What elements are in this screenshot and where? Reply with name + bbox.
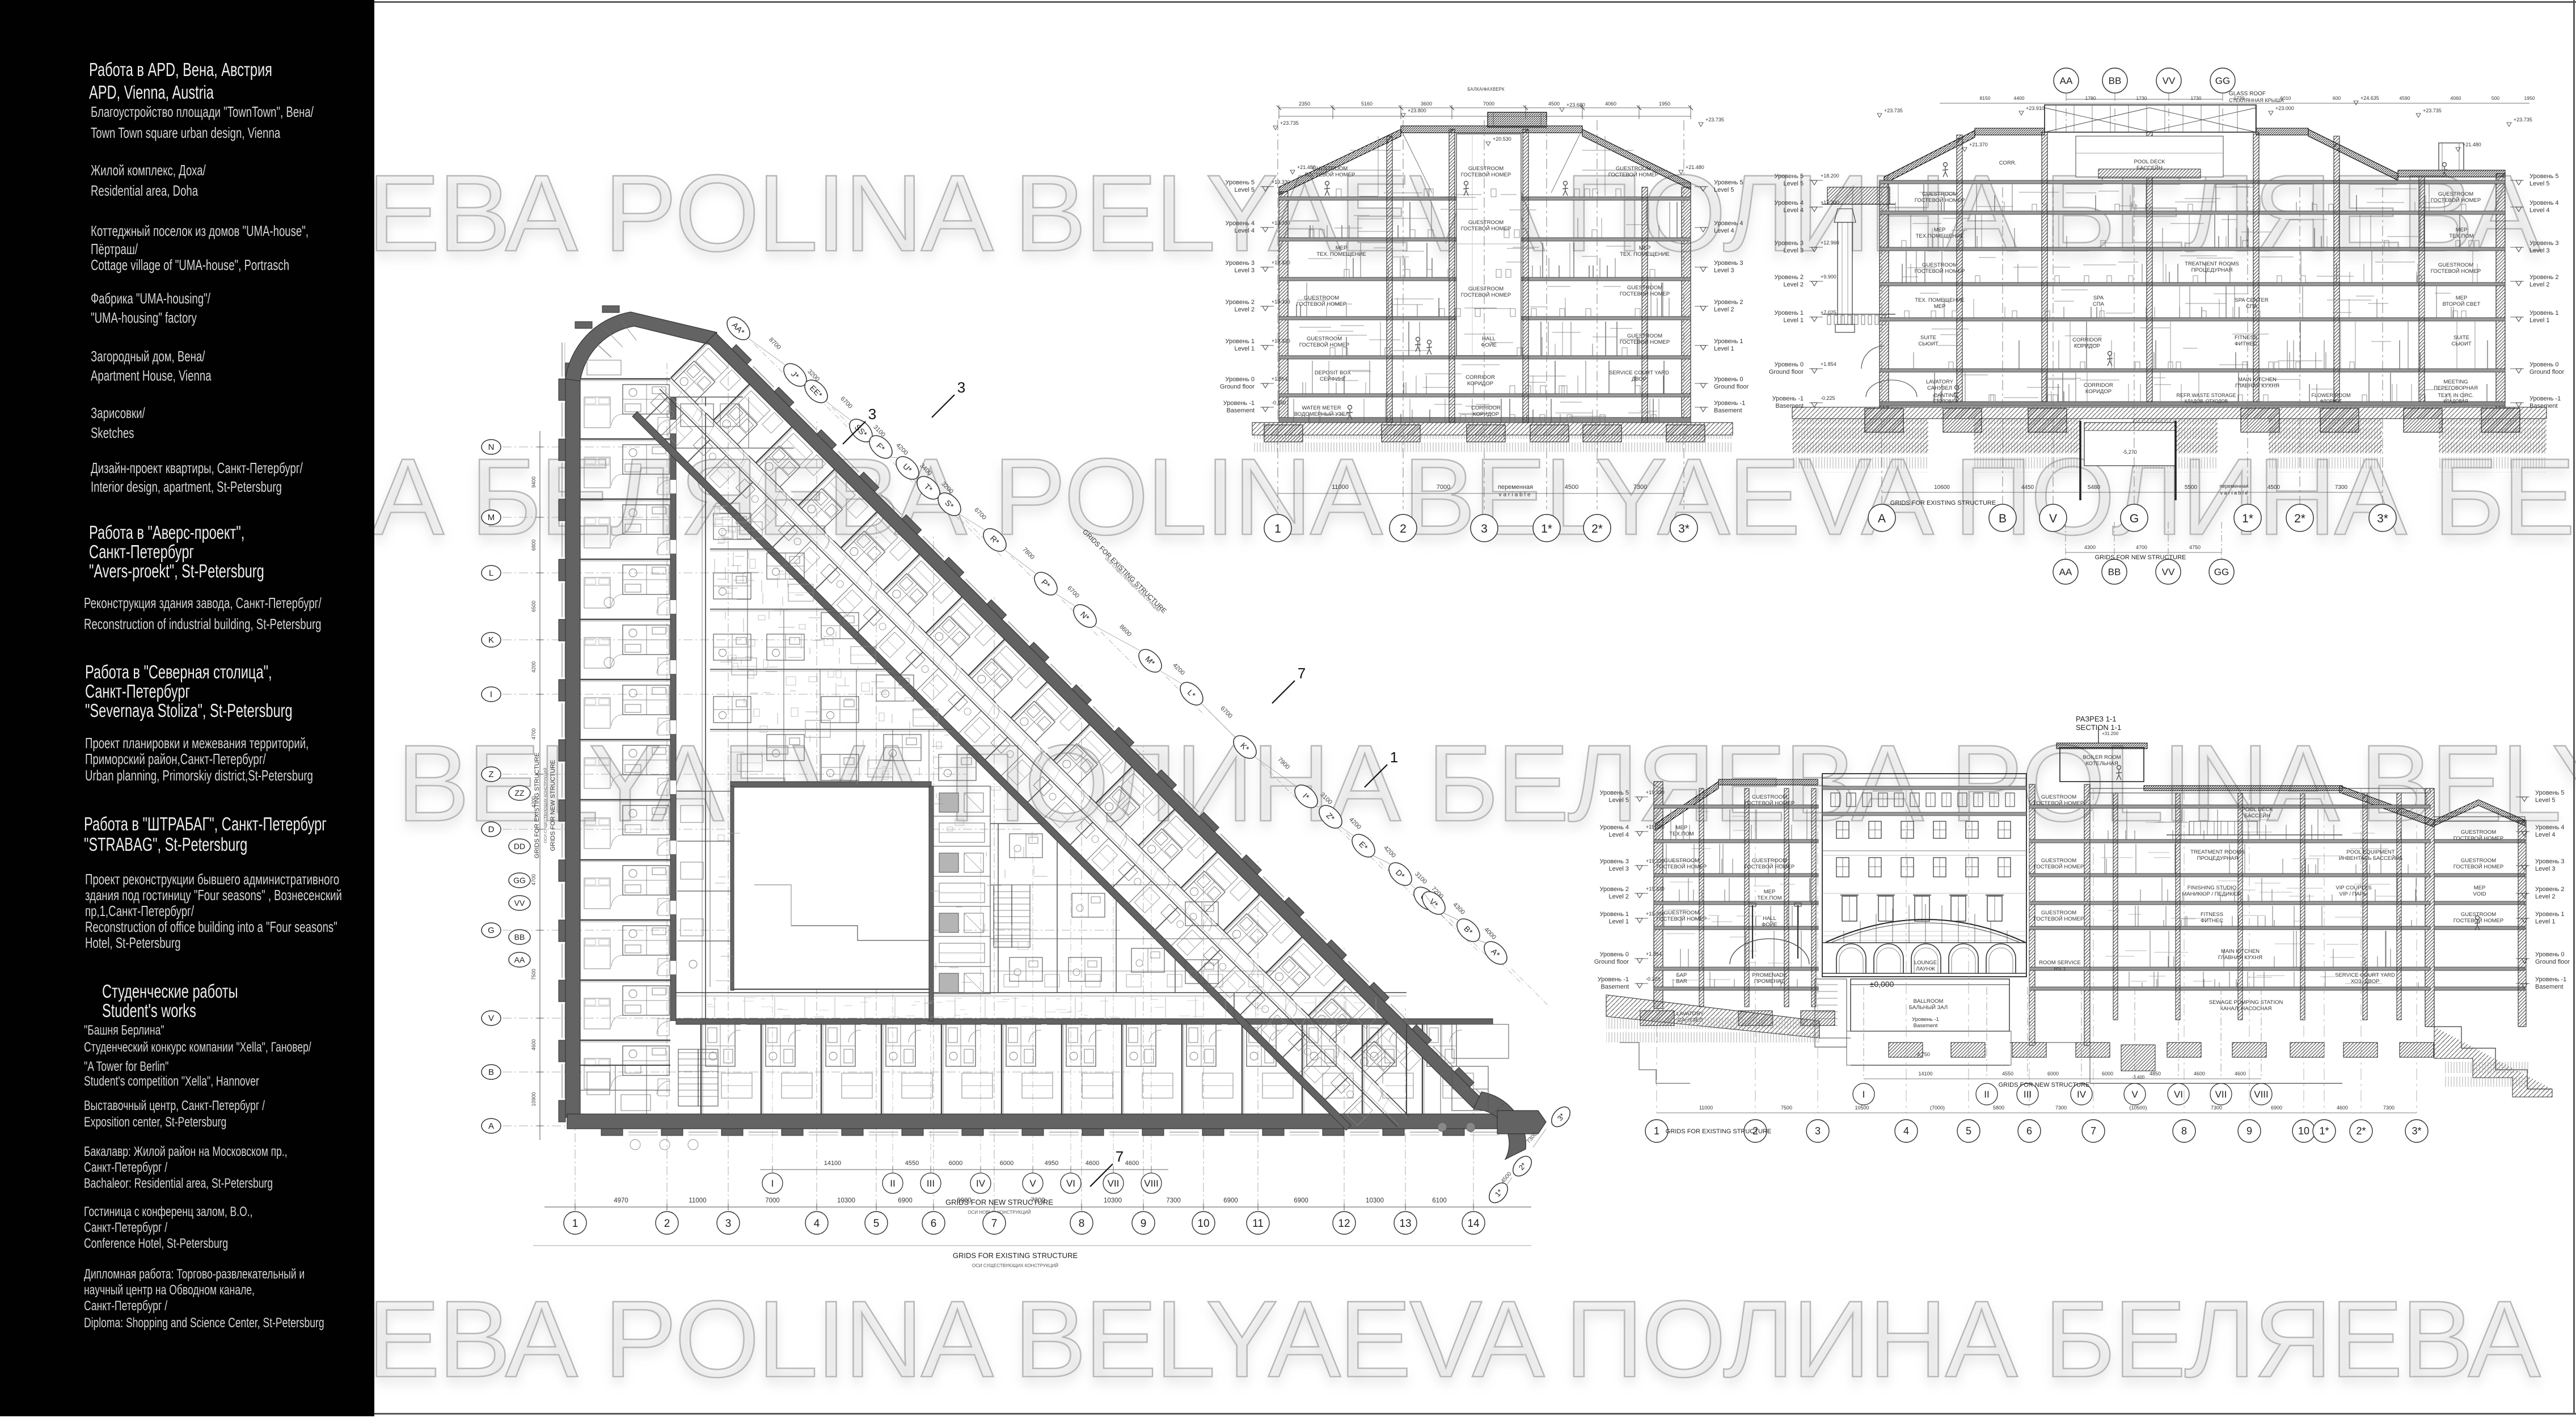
svg-text:+19.330: +19.330 [1646, 886, 1665, 892]
svg-text:4550: 4550 [905, 1160, 919, 1167]
svg-text:Уровень 0: Уровень 0 [1774, 361, 1804, 368]
svg-text:A: A [488, 1121, 494, 1131]
svg-text:-0.550: -0.550 [1272, 400, 1286, 406]
svg-text:K: K [488, 635, 494, 645]
svg-text:+19.330: +19.330 [1272, 220, 1290, 226]
svg-text:7500: 7500 [1781, 1105, 1792, 1111]
svg-text:КОРИДОР: КОРИДОР [2085, 389, 2112, 395]
svg-text:4500: 4500 [1548, 101, 1560, 107]
svg-text:4600: 4600 [2337, 1105, 2348, 1111]
svg-text:Уровень 4: Уровень 4 [2535, 824, 2565, 831]
svg-text:Level 1: Level 1 [2529, 317, 2549, 324]
svg-text:Level 4: Level 4 [2535, 832, 2555, 838]
svg-text:Level 3: Level 3 [1714, 267, 1734, 274]
svg-text:GUESTROOM: GUESTROOM [1616, 166, 1651, 172]
svg-text:GUESTROOM: GUESTROOM [2461, 829, 2496, 835]
svg-text:Уровень 1: Уровень 1 [1599, 911, 1629, 918]
svg-text:3: 3 [868, 406, 876, 423]
svg-text:КАНАЛ. НАСОСНАЯ: КАНАЛ. НАСОСНАЯ [2220, 1006, 2272, 1012]
svg-text:6100: 6100 [1432, 1197, 1447, 1204]
svg-text:10300: 10300 [1104, 1197, 1122, 1204]
svg-text:POOL EQUIPMENT: POOL EQUIPMENT [2346, 849, 2395, 855]
svg-text:CORRIDOR: CORRIDOR [2084, 382, 2113, 389]
svg-text:ТЕХ.ПОМ: ТЕХ.ПОМ [1757, 895, 1781, 901]
svg-text:DEPOSIT BOX: DEPOSIT BOX [1315, 370, 1352, 376]
svg-text:+23.735: +23.735 [2514, 117, 2532, 123]
svg-text:Level 5: Level 5 [1784, 180, 1804, 187]
svg-text:D: D [488, 825, 495, 834]
svg-text:1: 1 [1274, 522, 1281, 535]
svg-text:Уровень -1: Уровень -1 [1912, 1016, 1939, 1023]
svg-text:7: 7 [1116, 1148, 1124, 1165]
svg-text:ГОСТЕВОЙ НОМЕР: ГОСТЕВОЙ НОМЕР [2453, 863, 2503, 870]
svg-text:ДВОР: ДВОР [1632, 376, 1646, 382]
svg-text:переменная: переменная [2220, 483, 2249, 489]
svg-text:+19.330: +19.330 [1272, 260, 1290, 265]
svg-text:10900: 10900 [531, 1092, 537, 1106]
svg-text:+21.370: +21.370 [1969, 142, 1988, 147]
svg-text:ГЛАВНАЯ КУХНЯ: ГЛАВНАЯ КУХНЯ [2218, 955, 2262, 961]
svg-text:IV: IV [976, 1178, 986, 1189]
svg-text:7800: 7800 [1021, 546, 1036, 561]
svg-text:Level 1: Level 1 [2535, 918, 2555, 925]
svg-text:10: 10 [1197, 1218, 1209, 1230]
svg-text:I: I [490, 690, 492, 699]
svg-text:3: 3 [725, 1218, 732, 1230]
svg-text:Z: Z [488, 770, 493, 779]
svg-text:3400: 3400 [918, 462, 933, 477]
svg-text:ГОСТЕВОЙ НОМЕР: ГОСТЕВОЙ НОМЕР [2431, 268, 2481, 275]
svg-text:ГОСТЕВОЙ НОМЕР: ГОСТЕВОЙ НОМЕР [1461, 171, 1511, 178]
svg-text:Basement: Basement [1914, 1023, 1938, 1029]
svg-text:+23.680: +23.680 [1566, 102, 1585, 108]
svg-text:ИНВЕНТАРЬ БАССЕЙНА: ИНВЕНТАРЬ БАССЕЙНА [2339, 855, 2403, 862]
svg-text:7300: 7300 [2383, 1105, 2395, 1111]
svg-text:II: II [890, 1178, 895, 1189]
svg-text:+23.910: +23.910 [2026, 105, 2045, 111]
svg-text:GUESTROOM: GUESTROOM [1304, 295, 1339, 301]
svg-text:+24.635: +24.635 [2360, 95, 2379, 101]
svg-text:Level 2: Level 2 [1784, 281, 1804, 288]
svg-text:4300: 4300 [2084, 545, 2096, 550]
svg-text:+23.735: +23.735 [1280, 120, 1299, 126]
svg-text:4590: 4590 [2400, 95, 2410, 101]
svg-text:Basement: Basement [1714, 407, 1742, 414]
svg-text:GG: GG [513, 876, 526, 885]
svg-text:Уровень 1: Уровень 1 [1774, 310, 1804, 316]
svg-text:Уровень -1: Уровень -1 [2535, 976, 2566, 983]
svg-text:ГОСТЕВОЙ НОМЕР: ГОСТЕВОЙ НОМЕР [1608, 171, 1658, 178]
svg-text:ГОСТЕВОЙ НОМЕР: ГОСТЕВОЙ НОМЕР [2034, 800, 2084, 807]
svg-text:1730: 1730 [2191, 95, 2202, 101]
svg-text:ТЕХ. ПОМЕЩЕНИЕ: ТЕХ. ПОМЕЩЕНИЕ [1620, 251, 1670, 258]
svg-text:7: 7 [1298, 665, 1306, 682]
svg-text:CORRIDOR: CORRIDOR [2072, 337, 2102, 343]
svg-text:ТЕХ. ПОМЕЩЕНИЕ: ТЕХ. ПОМЕЩЕНИЕ [1316, 251, 1366, 258]
svg-text:Уровень 0: Уровень 0 [2529, 361, 2559, 368]
svg-text:Уровень 5: Уровень 5 [2535, 790, 2565, 796]
svg-text:SERVICE COURT YARD: SERVICE COURT YARD [2335, 972, 2395, 978]
svg-text:4500: 4500 [2267, 484, 2281, 491]
svg-text:Level 4: Level 4 [1784, 207, 1804, 214]
svg-text:+1.854: +1.854 [1821, 361, 1836, 367]
svg-text:4950: 4950 [1045, 1160, 1058, 1167]
svg-text:11000: 11000 [1332, 484, 1349, 491]
svg-text:GUESTROOM: GUESTROOM [1922, 191, 1957, 197]
svg-text:Basement: Basement [2529, 403, 2558, 410]
svg-text:MEP: MEP [2456, 227, 2468, 233]
svg-text:SEWAGE PUMPING STATION: SEWAGE PUMPING STATION [2209, 999, 2283, 1006]
svg-text:5: 5 [1966, 1125, 1971, 1137]
svg-text:Level 4: Level 4 [1714, 227, 1734, 234]
svg-text:3*: 3* [1678, 522, 1690, 535]
svg-text:ФОЙЕ: ФОЙЕ [1481, 341, 1497, 348]
svg-text:Уровень 3: Уровень 3 [1599, 858, 1629, 865]
svg-text:Уровень 5: Уровень 5 [1774, 173, 1804, 180]
svg-text:Ground floor: Ground floor [1769, 369, 1804, 375]
svg-text:7: 7 [991, 1218, 998, 1230]
svg-text:4970: 4970 [614, 1197, 628, 1204]
svg-text:DD: DD [514, 842, 525, 851]
svg-text:Basement: Basement [1226, 407, 1255, 414]
svg-text:10600: 10600 [1934, 484, 1950, 491]
svg-text:Уровень 0: Уровень 0 [2535, 951, 2565, 958]
svg-text:REFR.WASTE STORAGE: REFR.WASTE STORAGE [2176, 393, 2236, 398]
svg-text:GUESTROOM: GUESTROOM [1468, 166, 1504, 172]
svg-text:Уровень 3: Уровень 3 [2529, 240, 2559, 247]
svg-text:B: B [488, 1067, 494, 1077]
svg-text:Level 2: Level 2 [1235, 306, 1255, 313]
svg-text:6000: 6000 [2102, 1071, 2113, 1077]
svg-text:7300: 7300 [1166, 1197, 1181, 1204]
svg-text:3100: 3100 [1319, 791, 1333, 806]
svg-text:9: 9 [2246, 1125, 2252, 1137]
svg-text:4600: 4600 [1125, 1160, 1139, 1167]
svg-text:3*: 3* [2377, 512, 2388, 525]
svg-text:+23.735: +23.735 [1705, 117, 1724, 123]
svg-text:BOILER ROOM: BOILER ROOM [2083, 754, 2121, 761]
svg-text:Уровень 2: Уровень 2 [1599, 886, 1629, 893]
svg-text:6000: 6000 [949, 1160, 962, 1167]
svg-text:11000: 11000 [1699, 1105, 1713, 1111]
svg-text:ПЕРЕГОВОРНАЯ: ПЕРЕГОВОРНАЯ [2434, 385, 2478, 391]
svg-text:+21.480: +21.480 [1686, 164, 1704, 170]
svg-text:RS 1: RS 1 [2054, 966, 2066, 972]
svg-text:TEXT. IN CIRC.: TEXT. IN CIRC. [2438, 393, 2473, 398]
svg-text:ВОДОМЕРНЫЙ УЗЕЛ: ВОДОМЕРНЫЙ УЗЕЛ [1294, 411, 1349, 417]
svg-text:HALL: HALL [1763, 915, 1776, 922]
svg-text:Уровень 3: Уровень 3 [2535, 858, 2565, 865]
svg-text:BB: BB [2109, 75, 2122, 86]
svg-text:4700: 4700 [531, 728, 537, 740]
svg-text:8150: 8150 [1980, 95, 1991, 101]
svg-text:4200: 4200 [1171, 662, 1186, 677]
svg-text:БАЛЬНЫЙ ЗАЛ: БАЛЬНЫЙ ЗАЛ [1909, 1004, 1948, 1011]
svg-text:TREATMENT ROOMS: TREATMENT ROOMS [2185, 261, 2239, 267]
svg-text:4400: 4400 [2014, 95, 2025, 101]
svg-text:3600: 3600 [1421, 101, 1432, 107]
svg-text:КОРИДОР: КОРИДОР [1473, 411, 1499, 417]
svg-text:MEP: MEP [1639, 245, 1651, 251]
svg-text:Ground floor: Ground floor [1220, 383, 1255, 390]
svg-text:VV: VV [2162, 567, 2175, 577]
svg-text:SPA CENTER: SPA CENTER [2235, 297, 2269, 303]
svg-text:Уровень 0: Уровень 0 [1225, 376, 1255, 383]
svg-text:VV: VV [2163, 75, 2176, 86]
svg-text:Уровень -1: Уровень -1 [1223, 400, 1255, 407]
svg-text:ZZ: ZZ [514, 788, 525, 797]
svg-text:1730: 1730 [2136, 95, 2147, 101]
svg-text:4550: 4550 [2002, 1071, 2013, 1077]
svg-text:6: 6 [2026, 1125, 2032, 1137]
svg-text:Level 1: Level 1 [1714, 345, 1734, 352]
svg-text:GUESTROOM: GUESTROOM [1922, 262, 1957, 268]
svg-text:2: 2 [664, 1218, 670, 1230]
svg-text:V: V [1029, 1178, 1036, 1189]
svg-text:v a r i a b l e: v a r i a b l e [2220, 490, 2248, 496]
svg-text:GG: GG [2214, 567, 2229, 577]
svg-text:ФОЙЕ: ФОЙЕ [1762, 921, 1777, 928]
svg-text:ХОЗ. ДВОР: ХОЗ. ДВОР [2351, 978, 2380, 985]
svg-text:6900: 6900 [1294, 1197, 1308, 1204]
svg-text:±0,000: ±0,000 [1870, 980, 1894, 989]
svg-text:GUESTROOM: GUESTROOM [2438, 191, 2473, 197]
svg-text:AA: AA [2060, 75, 2073, 86]
svg-text:1950: 1950 [1659, 101, 1670, 107]
svg-text:SUITE: SUITE [1920, 335, 1936, 341]
svg-text:MAIN KITCHEN: MAIN KITCHEN [2238, 377, 2277, 383]
svg-text:3: 3 [1815, 1125, 1821, 1137]
svg-text:+7.025: +7.025 [1821, 310, 1836, 315]
svg-text:Level 1: Level 1 [1235, 345, 1255, 352]
svg-text:MEP: MEP [1934, 227, 1946, 233]
svg-text:+19.330: +19.330 [1646, 790, 1665, 795]
svg-text:BAR: BAR [1676, 978, 1687, 985]
svg-text:+23.000: +23.000 [2275, 105, 2294, 111]
svg-text:VI: VI [2174, 1089, 2183, 1100]
svg-text:5: 5 [873, 1218, 880, 1230]
svg-text:ГОСТЕВОЙ НОМЕР: ГОСТЕВОЙ НОМЕР [1620, 290, 1670, 297]
svg-text:КОТЕЛЬНАЯ: КОТЕЛЬНАЯ [2085, 761, 2118, 767]
svg-text:Level 5: Level 5 [2535, 797, 2555, 804]
svg-text:ТЕХ.ПОМ: ТЕХ.ПОМ [1669, 831, 1694, 837]
svg-text:GRIDS FOR NEW STRUCTURE: GRIDS FOR NEW STRUCTURE [2095, 554, 2186, 561]
svg-text:GUESTROOM: GUESTROOM [2461, 858, 2496, 864]
svg-text:Level 1: Level 1 [1784, 317, 1804, 324]
svg-text:ФИТНЕС: ФИТНЕС [2201, 918, 2223, 924]
svg-text:Уровень 5: Уровень 5 [1599, 790, 1629, 796]
svg-text:CORRIDOR: CORRIDOR [1471, 405, 1501, 411]
svg-text:6010: 6010 [2281, 95, 2291, 101]
svg-text:6700: 6700 [973, 507, 987, 521]
svg-text:GUESTROOM: GUESTROOM [1664, 858, 1699, 864]
svg-text:4200: 4200 [894, 442, 909, 457]
svg-text:+19.330: +19.330 [1646, 858, 1665, 864]
svg-text:Уровень 2: Уровень 2 [1714, 299, 1743, 306]
svg-text:ГОСТЕВОЙ НОМЕР: ГОСТЕВОЙ НОМЕР [2034, 915, 2084, 922]
svg-text:+20.530: +20.530 [1493, 136, 1511, 142]
svg-text:+21.480: +21.480 [2463, 142, 2481, 147]
svg-text:Ground floor: Ground floor [1714, 383, 1749, 390]
svg-text:MEP: MEP [1676, 825, 1688, 831]
svg-text:+23.735: +23.735 [2423, 108, 2442, 113]
svg-text:Уровень 1: Уровень 1 [1225, 338, 1255, 345]
svg-text:GUESTROOM: GUESTROOM [2438, 262, 2473, 268]
svg-text:12: 12 [1338, 1218, 1350, 1230]
svg-text:7500: 7500 [531, 969, 537, 980]
svg-text:Уровень 4: Уровень 4 [1599, 824, 1629, 831]
svg-text:AA: AA [514, 955, 525, 964]
svg-text:G: G [488, 926, 495, 935]
svg-text:ТЕХ.ПОМЕЩЕНИЕ: ТЕХ.ПОМЕЩЕНИЕ [1916, 233, 1964, 239]
svg-text:CORR.: CORR. [1999, 160, 2017, 166]
svg-text:G: G [2130, 512, 2139, 525]
svg-text:Уровень 1: Уровень 1 [2535, 911, 2565, 918]
svg-text:GUESTROOM: GUESTROOM [2041, 794, 2076, 800]
svg-text:11000: 11000 [689, 1197, 706, 1204]
svg-text:4750: 4750 [2189, 545, 2201, 550]
svg-text:5480: 5480 [2088, 484, 2101, 491]
svg-text:Level 4: Level 4 [1609, 832, 1629, 838]
svg-text:Уровень 4: Уровень 4 [1225, 220, 1255, 227]
svg-text:Level 2: Level 2 [2529, 281, 2549, 288]
svg-text:10500: 10500 [1855, 1105, 1869, 1111]
svg-text:CORRIDOR: CORRIDOR [1466, 374, 1495, 381]
svg-text:-0.225: -0.225 [1821, 395, 1835, 401]
svg-text:6700: 6700 [1219, 705, 1234, 720]
svg-text:VI: VI [1066, 1178, 1075, 1189]
svg-text:4000: 4000 [1483, 926, 1497, 941]
svg-text:КОРИДОР: КОРИДОР [1467, 381, 1493, 387]
svg-text:Level 2: Level 2 [2535, 893, 2555, 900]
svg-text:4850: 4850 [2150, 1071, 2161, 1077]
svg-text:Level 2: Level 2 [1609, 893, 1629, 900]
svg-text:-3,400: -3,400 [2132, 1075, 2145, 1080]
svg-text:ГОСТЕВОЙ НОМЕР: ГОСТЕВОЙ НОМЕР [1461, 292, 1511, 298]
svg-text:ROOM SERVICE: ROOM SERVICE [2039, 960, 2081, 966]
svg-text:ПРОЦЕДУРНАЯ: ПРОЦЕДУРНАЯ [2197, 855, 2239, 862]
svg-text:5500: 5500 [2185, 484, 2198, 491]
svg-text:I: I [771, 1178, 774, 1189]
svg-text:Level 2: Level 2 [1714, 306, 1734, 313]
svg-text:Уровень -1: Уровень -1 [1772, 395, 1804, 402]
svg-text:ГОСТЕВОЙ НОМЕР: ГОСТЕВОЙ НОМЕР [1461, 225, 1511, 232]
svg-text:ГОСТЕВОЙ НОМЕР: ГОСТЕВОЙ НОМЕР [1745, 800, 1794, 807]
svg-text:MEETING: MEETING [2443, 379, 2468, 385]
svg-text:ТЕХ. ПОМЕЩЕНИЕ: ТЕХ. ПОМЕЩЕНИЕ [1915, 297, 1965, 303]
svg-text:Уровень 3: Уровень 3 [1714, 260, 1743, 267]
svg-text:2350: 2350 [1299, 101, 1310, 107]
svg-text:Basement: Basement [1775, 403, 1804, 410]
svg-text:3*: 3* [2412, 1125, 2421, 1137]
svg-text:-0.220: -0.220 [1646, 976, 1661, 982]
svg-text:3: 3 [957, 379, 965, 396]
svg-text:+19.330: +19.330 [1272, 338, 1290, 344]
svg-text:II: II [1984, 1089, 1989, 1100]
svg-text:6700: 6700 [839, 395, 854, 410]
svg-text:Уровень 5: Уровень 5 [1225, 179, 1255, 186]
svg-text:7000: 7000 [1483, 101, 1494, 107]
svg-text:4200: 4200 [1348, 816, 1362, 831]
svg-text:V: V [488, 1014, 494, 1023]
svg-text:WATER METER: WATER METER [1302, 405, 1341, 411]
svg-text:+31.200: +31.200 [2102, 731, 2119, 736]
svg-text:4500: 4500 [1500, 1171, 1513, 1184]
svg-text:+19.330: +19.330 [1272, 179, 1290, 185]
svg-text:+9.900: +9.900 [1821, 274, 1836, 280]
svg-text:ГЛАВНАЯ КУХНЯ: ГЛАВНАЯ КУХНЯ [2235, 383, 2279, 389]
svg-text:2*: 2* [2294, 512, 2305, 525]
svg-text:GUESTROOM: GUESTROOM [2041, 910, 2076, 916]
svg-text:+18.200: +18.200 [1821, 173, 1839, 179]
svg-text:Level 5: Level 5 [1235, 187, 1255, 193]
svg-text:B: B [1999, 512, 2007, 525]
svg-text:4200: 4200 [531, 661, 537, 673]
svg-text:GUESTROOM: GUESTROOM [1752, 858, 1787, 864]
svg-text:ОСИ СУЩЕСТВУЮЩИХ КОНСТРУКЦИЙ: ОСИ СУЩЕСТВУЮЩИХ КОНСТРУКЦИЙ [543, 767, 548, 843]
svg-text:ПРОМЕНАД: ПРОМЕНАД [1754, 978, 1785, 985]
svg-text:MEP: MEP [1764, 889, 1776, 895]
svg-text:BALLROOM: BALLROOM [1914, 998, 1944, 1005]
svg-text:SUITE: SUITE [2453, 335, 2469, 341]
svg-text:4700: 4700 [2136, 545, 2147, 550]
svg-text:POOL DECK: POOL DECK [2134, 159, 2165, 165]
svg-text:1: 1 [572, 1218, 578, 1230]
svg-text:MEP: MEP [2474, 885, 2486, 891]
svg-text:Уровень -1: Уровень -1 [1714, 400, 1745, 407]
svg-text:VV: VV [514, 898, 525, 908]
svg-text:3: 3 [1481, 522, 1488, 535]
svg-text:GUESTROOM: GUESTROOM [1307, 336, 1342, 342]
svg-text:GUESTROOM: GUESTROOM [1312, 166, 1348, 172]
svg-text:9400: 9400 [531, 476, 537, 488]
svg-text:FINISHING STUDIO: FINISHING STUDIO [2188, 885, 2237, 891]
svg-text:Уровень 2: Уровень 2 [1225, 299, 1255, 306]
svg-text:ГОСТЕВОЙ НОМЕР: ГОСТЕВОЙ НОМЕР [1915, 268, 1965, 275]
svg-text:7300: 7300 [1633, 484, 1647, 491]
svg-text:1: 1 [1654, 1125, 1659, 1137]
svg-text:BB: BB [514, 932, 525, 942]
svg-text:GUESTROOM: GUESTROOM [1468, 286, 1504, 292]
svg-text:СПА: СПА [2093, 301, 2105, 307]
svg-text:4300: 4300 [1451, 901, 1466, 916]
svg-text:GUESTROOM: GUESTROOM [1752, 794, 1787, 800]
svg-text:Уровень 3: Уровень 3 [1225, 260, 1255, 267]
svg-text:Уровень -1: Уровень -1 [2529, 395, 2561, 402]
svg-text:8: 8 [1079, 1218, 1085, 1230]
svg-text:10300: 10300 [1366, 1197, 1384, 1204]
svg-text:Ground floor: Ground floor [1594, 959, 1629, 965]
svg-text:5800: 5800 [1993, 1105, 2004, 1111]
svg-text:1*: 1* [2319, 1125, 2329, 1137]
svg-text:+1.854: +1.854 [1646, 951, 1662, 957]
svg-text:M: M [488, 513, 495, 522]
svg-text:БАССЕЙН: БАССЕЙН [2136, 164, 2163, 171]
svg-text:ГОСТЕВОЙ НОМЕР: ГОСТЕВОЙ НОМЕР [1299, 341, 1349, 348]
svg-text:VIP / ПАРЫ: VIP / ПАРЫ [2339, 891, 2368, 897]
svg-text:2*: 2* [1591, 522, 1603, 535]
svg-text:LOUNGE: LOUNGE [1914, 960, 1937, 966]
svg-text:1730: 1730 [2234, 95, 2245, 101]
svg-text:Basement: Basement [1601, 984, 1629, 990]
svg-text:1*: 1* [2242, 512, 2253, 525]
svg-text:Ground floor: Ground floor [2529, 369, 2564, 375]
svg-text:4600: 4600 [1086, 1160, 1099, 1167]
svg-text:GUESTROOM: GUESTROOM [1664, 910, 1699, 916]
svg-text:GUESTROOM: GUESTROOM [1627, 285, 1662, 291]
svg-text:КЛАДОВАЯ: КЛАДОВАЯ [2443, 399, 2468, 404]
svg-text:I: I [1863, 1089, 1865, 1100]
